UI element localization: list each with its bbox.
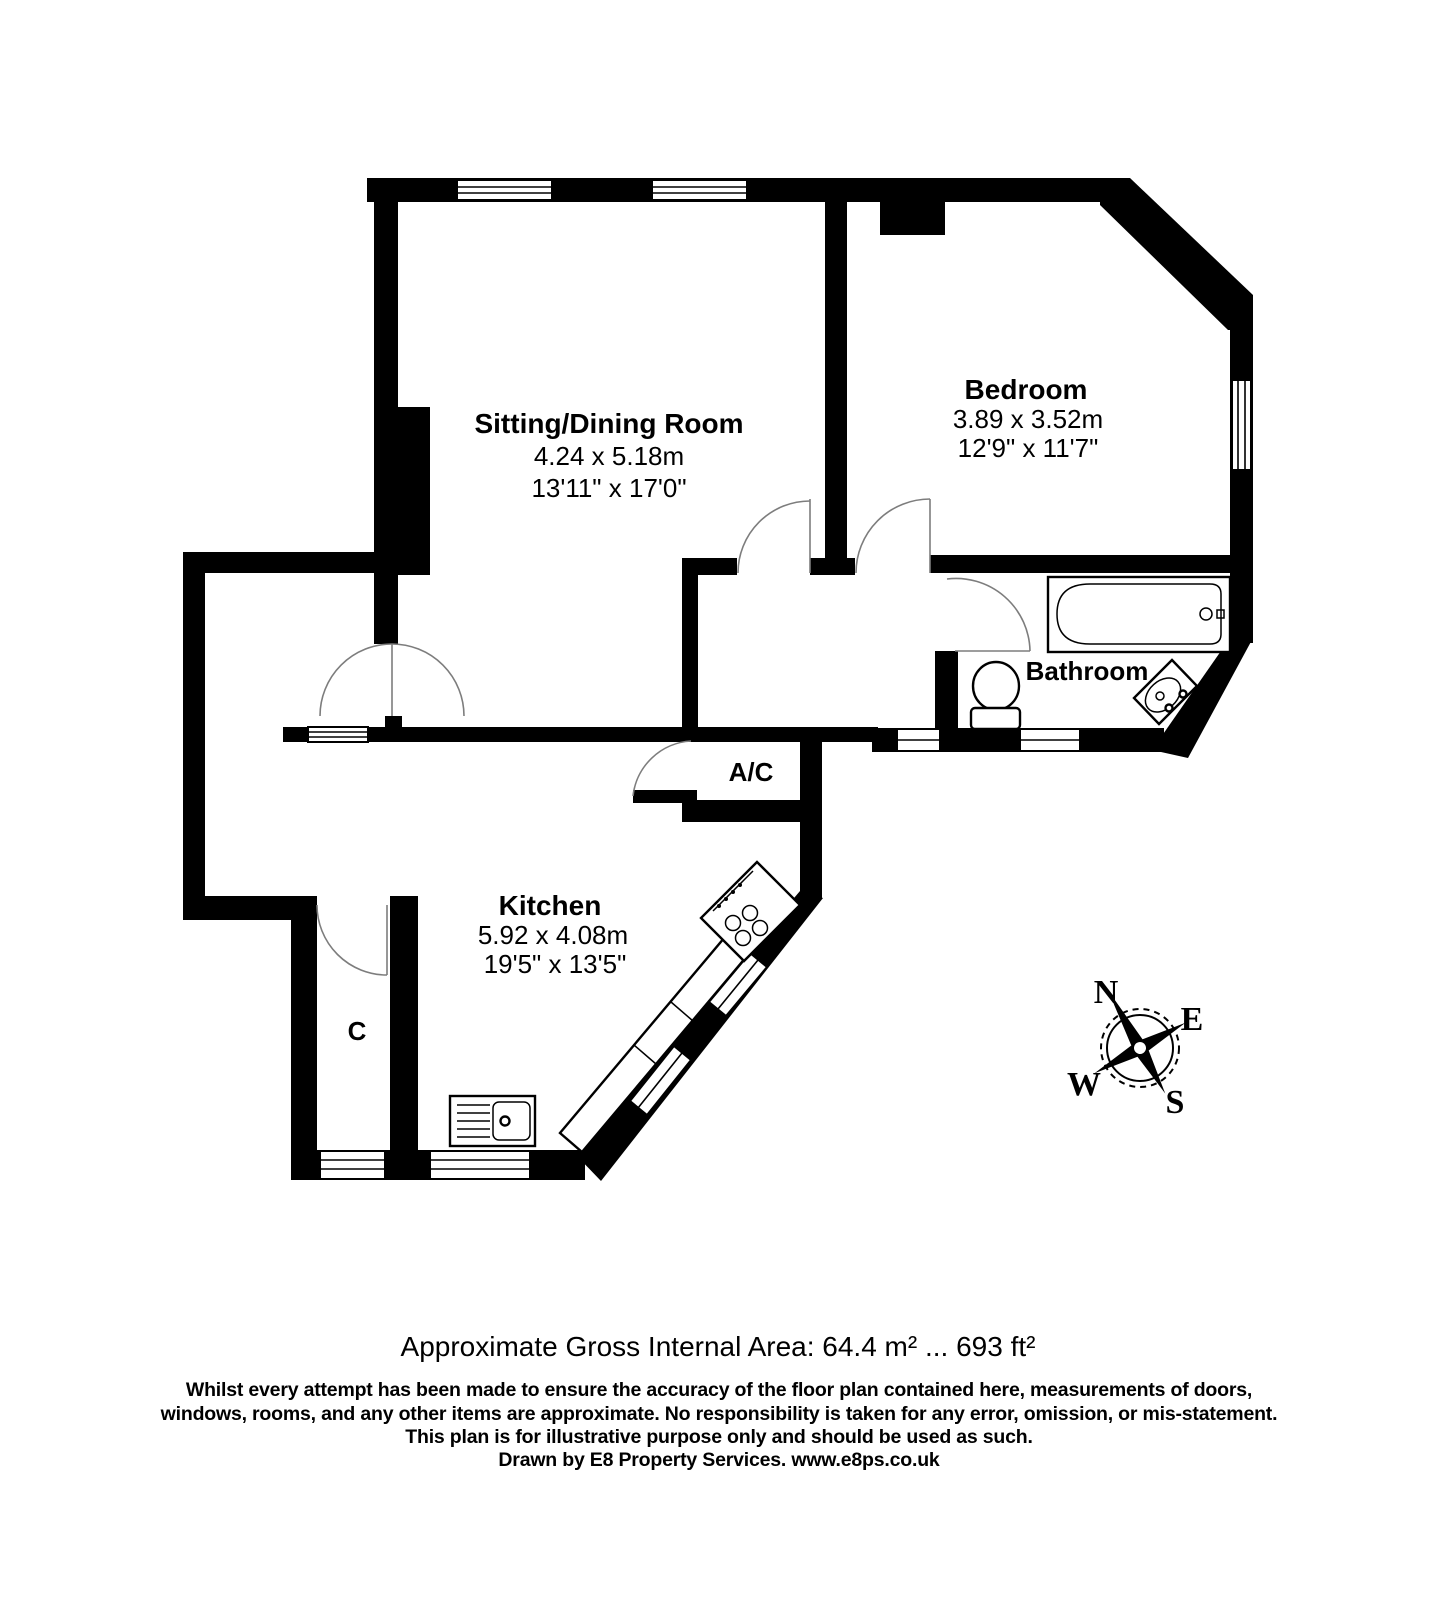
internal-window-icon — [308, 727, 368, 742]
disclaimer-line-3: This plan is for illustrative purpose on… — [405, 1426, 1032, 1448]
gross-internal-area: Approximate Gross Internal Area: 64.4 m²… — [401, 1331, 1036, 1362]
kitchen-sink-icon — [450, 1096, 535, 1146]
floor-plan-page: N E W S Sitting/Dining Room 4.24 x 5.18m… — [0, 0, 1439, 1597]
disclaimer-line-1: Whilst every attempt has been made to en… — [186, 1379, 1252, 1401]
door-ac-closet — [633, 741, 697, 803]
door-bathroom — [947, 578, 1030, 651]
compass-north-label: N — [1094, 974, 1119, 1011]
bedroom-imperial: 12'9" x 11'7" — [958, 433, 1099, 463]
window-icon — [652, 180, 747, 200]
door-hall-sitting — [320, 644, 464, 716]
sitting-room-metric: 4.24 x 5.18m — [534, 441, 684, 471]
compass-south-label: S — [1166, 1084, 1185, 1121]
compass-rose-icon: N E W S — [1063, 965, 1211, 1121]
ac-label: A/C — [729, 757, 774, 787]
compass-east-label: E — [1181, 1001, 1204, 1038]
window-icon — [320, 1151, 385, 1179]
window-icon — [1232, 380, 1251, 470]
sitting-room-name: Sitting/Dining Room — [474, 408, 743, 439]
door-bedroom — [856, 499, 930, 573]
window-icon — [897, 729, 940, 751]
credit-line: Drawn by E8 Property Services. www.e8ps.… — [498, 1449, 939, 1471]
kitchen-imperial: 19'5" x 13'5" — [484, 949, 627, 979]
floor-plan-drawing: N E W S Sitting/Dining Room 4.24 x 5.18m… — [0, 0, 1439, 1597]
cupboard-label: C — [348, 1016, 367, 1046]
bathroom-name: Bathroom — [1026, 656, 1149, 686]
disclaimer-line-2: windows, rooms, and any other items are … — [160, 1403, 1278, 1425]
sitting-room-imperial: 13'11" x 17'0" — [531, 473, 686, 503]
window-icon — [1020, 729, 1080, 751]
door-sitting-room — [738, 499, 810, 573]
toilet-icon — [971, 662, 1020, 729]
bedroom-metric: 3.89 x 3.52m — [953, 404, 1103, 434]
kitchen-name: Kitchen — [499, 890, 602, 921]
kitchen-metric: 5.92 x 4.08m — [478, 920, 628, 950]
bathtub-icon — [1048, 577, 1230, 652]
bedroom-name: Bedroom — [965, 374, 1088, 405]
door-cupboard — [317, 905, 387, 975]
window-icon — [457, 180, 552, 200]
footer: Approximate Gross Internal Area: 64.4 m²… — [160, 1331, 1278, 1471]
window-icon — [430, 1151, 530, 1179]
compass-west-label: W — [1067, 1066, 1101, 1103]
